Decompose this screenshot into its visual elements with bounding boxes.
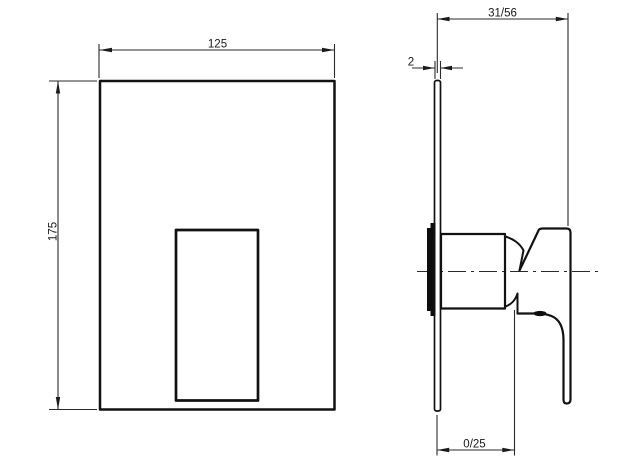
dimension-plate-thickness: 2 — [408, 57, 463, 80]
arrowhead-up-icon — [56, 81, 60, 94]
arrowhead-right-icon — [556, 17, 568, 21]
technical-drawing-canvas: 125 175 — [0, 0, 630, 472]
dimension-label-projection: 31/56 — [488, 8, 517, 20]
cone-lower-profile — [505, 294, 518, 314]
arrowhead-left-icon — [100, 48, 113, 52]
arrowhead-left-icon — [441, 66, 453, 70]
arrowhead-right-icon — [423, 66, 435, 70]
dimension-projection: 31/56 — [437, 8, 568, 227]
dimension-recess: 0/25 — [437, 310, 515, 456]
arrowhead-left-icon — [437, 17, 449, 21]
arrowhead-right-icon — [322, 48, 335, 52]
front-handle-cutout — [176, 230, 258, 401]
arrowhead-right-icon — [502, 448, 514, 452]
body-flange-seal-outer — [427, 228, 431, 311]
handle-base-detail — [534, 311, 547, 316]
arrowhead-down-icon — [56, 397, 60, 410]
dimension-front-height: 175 — [48, 81, 98, 410]
dimension-label-front-height: 175 — [48, 222, 60, 241]
front-view — [100, 81, 335, 410]
handle-lever-outline — [518, 229, 571, 404]
front-plate-outline — [100, 81, 335, 410]
arrowhead-left-icon — [437, 448, 449, 452]
side-view — [417, 81, 598, 412]
dimension-label-front-width: 125 — [208, 39, 227, 51]
dimension-label-recess: 0/25 — [463, 439, 485, 451]
dimension-label-plate-thickness: 2 — [408, 57, 414, 69]
mixer-technical-drawing: 125 175 — [0, 0, 630, 472]
dimension-front-width: 125 — [99, 39, 335, 79]
